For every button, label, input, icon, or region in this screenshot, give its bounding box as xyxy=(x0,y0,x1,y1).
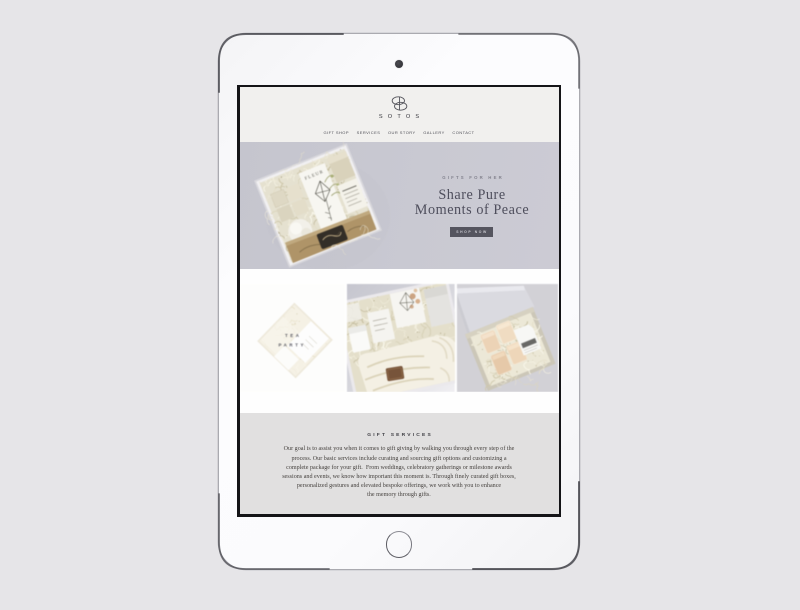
svg-text:TEA: TEA xyxy=(284,333,301,338)
svg-text:PARTY: PARTY xyxy=(278,343,306,348)
